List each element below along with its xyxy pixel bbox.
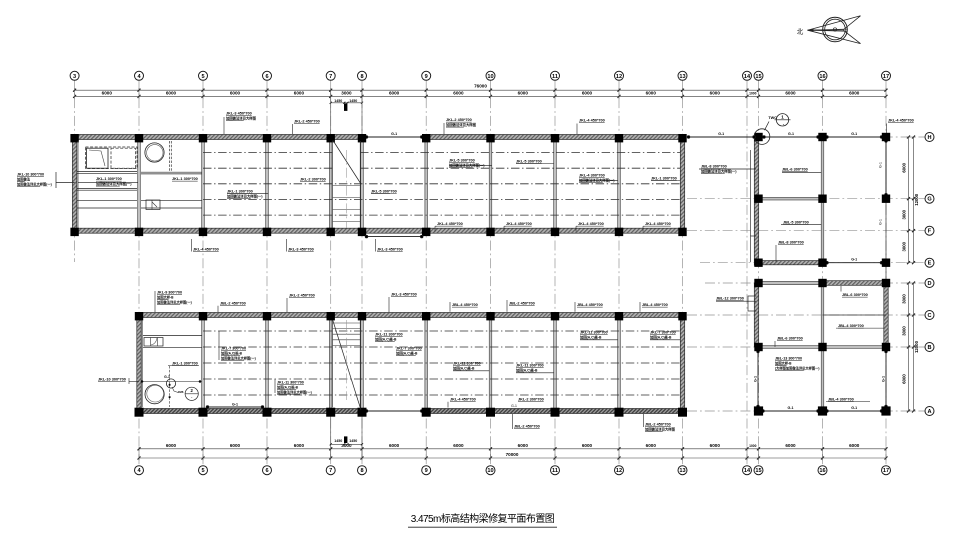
svg-text:6000: 6000: [849, 91, 860, 96]
svg-text:JBL-8 300*700: JBL-8 300*700: [701, 165, 727, 169]
svg-text:G-1: G-1: [164, 375, 170, 379]
svg-text:G-1: G-1: [851, 258, 857, 262]
svg-text:G-1: G-1: [879, 219, 883, 225]
svg-text:17: 17: [883, 468, 889, 474]
svg-text:6000: 6000: [294, 443, 305, 448]
svg-text:6000: 6000: [710, 443, 721, 448]
svg-text:JKL-3 450*700: JKL-3 450*700: [377, 247, 403, 251]
svg-text:6000: 6000: [582, 91, 593, 96]
svg-text:6000: 6000: [582, 443, 593, 448]
svg-text:A: A: [927, 409, 931, 415]
svg-text:JKL-5 300*700: JKL-5 300*700: [516, 160, 542, 164]
svg-text:加固大样-B: 加固大样-B: [156, 294, 174, 299]
svg-text:6000: 6000: [230, 443, 241, 448]
svg-text:G-1: G-1: [232, 402, 238, 406]
svg-text:JBL-4 300*700: JBL-4 300*700: [838, 324, 864, 328]
svg-text:3000: 3000: [901, 294, 906, 304]
svg-text:JKL-4 450*700: JKL-4 450*700: [645, 222, 671, 226]
svg-text:6000: 6000: [230, 91, 241, 96]
svg-text:12000: 12000: [914, 193, 919, 206]
svg-text:加固做法详见大样图(一): 加固做法详见大样图(一): [226, 194, 263, 199]
svg-text:3000: 3000: [901, 241, 906, 251]
svg-text:加固做法详见大样图(一): 加固做法详见大样图(一): [16, 181, 52, 186]
svg-text:G-1: G-1: [788, 406, 794, 410]
svg-text:加固(A,C)栋-B: 加固(A,C)栋-B: [452, 366, 475, 371]
svg-text:1450: 1450: [334, 99, 342, 103]
svg-text:JKL-4 450*700: JKL-4 450*700: [888, 119, 914, 123]
svg-text:JKL-2 450*700: JKL-2 450*700: [289, 294, 315, 298]
svg-text:1450: 1450: [349, 439, 357, 443]
svg-text:JKL-4 450*700: JKL-4 450*700: [578, 222, 604, 226]
svg-text:12: 12: [616, 468, 622, 474]
svg-text:7: 7: [329, 74, 332, 80]
svg-text:G-1: G-1: [754, 376, 758, 382]
svg-text:12: 12: [616, 74, 622, 80]
svg-text:6000: 6000: [294, 91, 305, 96]
svg-text:加固做法: 加固做法: [16, 176, 31, 181]
svg-text:10: 10: [487, 74, 493, 80]
svg-text:3000: 3000: [901, 209, 906, 219]
svg-text:3000: 3000: [341, 91, 352, 96]
svg-text:JKL-7 300*700: JKL-7 300*700: [221, 347, 246, 351]
svg-text:JKL-11 300*700: JKL-11 300*700: [516, 364, 544, 368]
svg-text:JKL-4 300*700: JKL-4 300*700: [579, 174, 605, 178]
svg-text:G-1: G-1: [879, 162, 883, 168]
svg-text:TWC: TWC: [768, 116, 777, 120]
svg-text:5: 5: [201, 468, 204, 474]
svg-text:JKL-11 300*700: JKL-11 300*700: [453, 362, 481, 366]
svg-text:JBL-13 300*700: JBL-13 300*700: [775, 357, 802, 361]
svg-text:G-1: G-1: [718, 132, 724, 136]
svg-text:JKL-5 300*700: JKL-5 300*700: [371, 190, 397, 194]
svg-text:JKL-3 450*700: JKL-3 450*700: [288, 247, 314, 251]
svg-text:6000: 6000: [710, 91, 721, 96]
svg-text:6000: 6000: [453, 91, 464, 96]
svg-text:加固做法详见大样图(一): 加固做法详见大样图(一): [156, 299, 192, 304]
svg-text:加固(A,C)栋-B: 加固(A,C)栋-B: [649, 335, 672, 340]
svg-text:F: F: [928, 229, 932, 235]
svg-text:JKL-4 450*700: JKL-4 450*700: [579, 119, 605, 123]
svg-text:JKL-1 300*700: JKL-1 300*700: [172, 362, 198, 366]
svg-text:8: 8: [360, 74, 363, 80]
svg-text:G-1: G-1: [851, 406, 857, 410]
svg-text:JBL-4 450*700: JBL-4 450*700: [577, 303, 603, 307]
svg-text:JKL-7 300*700: JKL-7 300*700: [396, 347, 422, 351]
svg-text:1000: 1000: [749, 444, 757, 448]
svg-text:加固大样-B: 加固大样-B: [774, 360, 792, 365]
svg-text:3000: 3000: [341, 443, 352, 448]
svg-text:JKL-11 300*700: JKL-11 300*700: [277, 381, 304, 385]
svg-text:JKL-7 300*700: JKL-7 300*700: [650, 331, 676, 335]
svg-text:14: 14: [744, 468, 751, 474]
svg-text:C: C: [927, 313, 931, 319]
svg-text:70000: 70000: [506, 452, 519, 457]
svg-text:JKL-4 450*700: JKL-4 450*700: [506, 222, 532, 226]
svg-text:6000: 6000: [453, 443, 464, 448]
svg-text:JKL-1 300*700: JKL-1 300*700: [651, 177, 677, 181]
svg-text:6: 6: [265, 74, 268, 80]
svg-text:G-1: G-1: [882, 376, 886, 382]
svg-text:H: H: [927, 135, 931, 141]
svg-text:6: 6: [265, 468, 268, 474]
svg-text:JBL-2 450*700: JBL-2 450*700: [509, 302, 535, 306]
svg-text:加固(A,C)栋-B: 加固(A,C)栋-B: [374, 337, 397, 342]
svg-text:加固做法详见大样图: 加固做法详见大样图: [225, 116, 257, 121]
svg-text:JBL-8 300*700: JBL-8 300*700: [778, 241, 804, 245]
svg-text:76000: 76000: [474, 83, 487, 88]
svg-text:G-1: G-1: [788, 132, 794, 136]
svg-text:1450: 1450: [334, 439, 342, 443]
svg-text:JKL-3 450*700: JKL-3 450*700: [226, 112, 252, 116]
svg-text:G-1: G-1: [851, 132, 857, 136]
svg-text:1000: 1000: [749, 92, 757, 96]
svg-text:加固(A,C)栋-B: 加固(A,C)栋-B: [276, 384, 299, 389]
svg-text:JKL-1 300*700: JKL-1 300*700: [172, 177, 198, 181]
svg-text:JBL-2 450*700: JBL-2 450*700: [220, 302, 246, 306]
svg-text:1M6: 1M6: [178, 390, 184, 394]
svg-text:JKL-2 450*700: JKL-2 450*700: [446, 118, 472, 122]
svg-text:11: 11: [552, 74, 558, 80]
svg-text:3.475m标高结构梁修复平面布置图: 3.475m标高结构梁修复平面布置图: [411, 512, 555, 525]
svg-text:7: 7: [329, 468, 332, 474]
svg-text:D: D: [927, 281, 931, 287]
svg-text:JKL-4 450*700: JKL-4 450*700: [450, 398, 476, 402]
svg-text:加固做法详见大样图(一): 加固做法详见大样图(一): [448, 163, 485, 168]
svg-text:加固(A,C)栋-B: 加固(A,C)栋-B: [220, 350, 243, 355]
svg-text:3000: 3000: [901, 326, 906, 336]
svg-text:JBL-4 300*700: JBL-4 300*700: [828, 398, 854, 402]
svg-text:3: 3: [73, 74, 76, 80]
svg-text:JKL-2 300*700: JKL-2 300*700: [300, 178, 326, 182]
svg-text:G-1: G-1: [391, 132, 397, 136]
svg-text:JBL-12 300*700: JBL-12 300*700: [716, 297, 744, 301]
svg-text:JKL-2 300*700: JKL-2 300*700: [518, 398, 544, 402]
svg-text:14: 14: [744, 74, 751, 80]
svg-text:6000: 6000: [785, 91, 796, 96]
svg-text:G: G: [927, 197, 931, 203]
svg-text:6000: 6000: [389, 443, 400, 448]
svg-text:加固做法详见大样图(一): 加固做法详见大样图(一): [578, 178, 615, 183]
svg-text:15: 15: [755, 468, 761, 474]
svg-text:JKL-2 450*700: JKL-2 450*700: [294, 120, 320, 124]
svg-text:JBL-6 300*700: JBL-6 300*700: [842, 293, 868, 297]
svg-text:加固做法详见大样图: 加固做法详见大样图: [644, 427, 676, 432]
svg-text:加固做法详见大样图(一): 加固做法详见大样图(一): [95, 181, 132, 186]
svg-text:加固做法详见大样图(一): 加固做法详见大样图(一): [220, 355, 256, 360]
svg-text:北: 北: [797, 28, 804, 36]
svg-text:16: 16: [819, 74, 825, 80]
svg-text:JBL-2 450*700: JBL-2 450*700: [645, 423, 671, 427]
svg-text:6000: 6000: [646, 91, 657, 96]
svg-text:JKL-1 300*700: JKL-1 300*700: [227, 190, 253, 194]
svg-text:6000: 6000: [901, 162, 906, 172]
svg-text:JKL-10 300*700: JKL-10 300*700: [98, 378, 126, 382]
svg-text:JKL-9 300*700: JKL-9 300*700: [157, 291, 182, 295]
svg-text:10: 10: [487, 468, 493, 474]
svg-text:15: 15: [755, 74, 761, 80]
svg-text:JBL-2 450*700: JBL-2 450*700: [514, 425, 540, 429]
svg-text:6000: 6000: [785, 443, 796, 448]
svg-text:9: 9: [425, 74, 428, 80]
svg-text:JKL-1 300*700: JKL-1 300*700: [96, 177, 122, 181]
svg-text:加固(A,C)栋-B: 加固(A,C)栋-B: [579, 335, 602, 340]
svg-text:6000: 6000: [901, 374, 906, 384]
svg-text:JKL-5 300*700: JKL-5 300*700: [449, 159, 475, 163]
svg-text:JKL-11 300*700: JKL-11 300*700: [580, 331, 608, 335]
svg-text:6000: 6000: [518, 443, 529, 448]
svg-text:13: 13: [679, 468, 685, 474]
svg-text:加固(A,C)栋-B: 加固(A,C)栋-B: [395, 351, 418, 356]
svg-text:6000: 6000: [166, 443, 177, 448]
svg-text:13: 13: [679, 74, 685, 80]
svg-text:JBL-4 450*700: JBL-4 450*700: [452, 303, 478, 307]
svg-text:JBL-5 300*700: JBL-5 300*700: [783, 221, 809, 225]
svg-text:6000: 6000: [102, 91, 113, 96]
svg-text:JKL-11 300*700: JKL-11 300*700: [375, 333, 403, 337]
svg-text:(大样图加固做法详见大样图一): (大样图加固做法详见大样图一): [775, 365, 819, 370]
svg-text:6000: 6000: [646, 443, 657, 448]
svg-text:JBL-4 450*700: JBL-4 450*700: [642, 303, 668, 307]
svg-text:JKL-10 300*700: JKL-10 300*700: [17, 173, 44, 177]
svg-text:加固做法详见大样图(一): 加固做法详见大样图(一): [276, 389, 312, 394]
svg-text:16: 16: [819, 468, 825, 474]
svg-text:JKL-3 450*700: JKL-3 450*700: [391, 293, 417, 297]
svg-text:11: 11: [552, 468, 558, 474]
svg-text:G-1: G-1: [511, 404, 517, 408]
svg-text:1450: 1450: [349, 99, 357, 103]
svg-text:JBL-6 300*700: JBL-6 300*700: [777, 337, 803, 341]
svg-text:6000: 6000: [389, 91, 400, 96]
svg-text:12000: 12000: [914, 340, 919, 353]
svg-text:E: E: [928, 261, 932, 267]
svg-text:6000: 6000: [166, 91, 177, 96]
svg-text:B: B: [927, 345, 931, 351]
svg-text:加固(A,C)栋-B: 加固(A,C)栋-B: [515, 368, 538, 373]
svg-text:JBL-6 300*700: JBL-6 300*700: [782, 168, 808, 172]
svg-text:8: 8: [360, 468, 363, 474]
svg-text:5: 5: [201, 74, 204, 80]
svg-text:6000: 6000: [518, 91, 529, 96]
svg-text:JKL-4 450*700: JKL-4 450*700: [437, 222, 463, 226]
svg-text:17: 17: [883, 74, 889, 80]
svg-text:加固做法详见大样图: 加固做法详见大样图: [445, 122, 477, 127]
svg-text:9: 9: [425, 468, 428, 474]
svg-text:6000: 6000: [849, 443, 860, 448]
svg-text:JKL-4 450*700: JKL-4 450*700: [193, 247, 219, 251]
